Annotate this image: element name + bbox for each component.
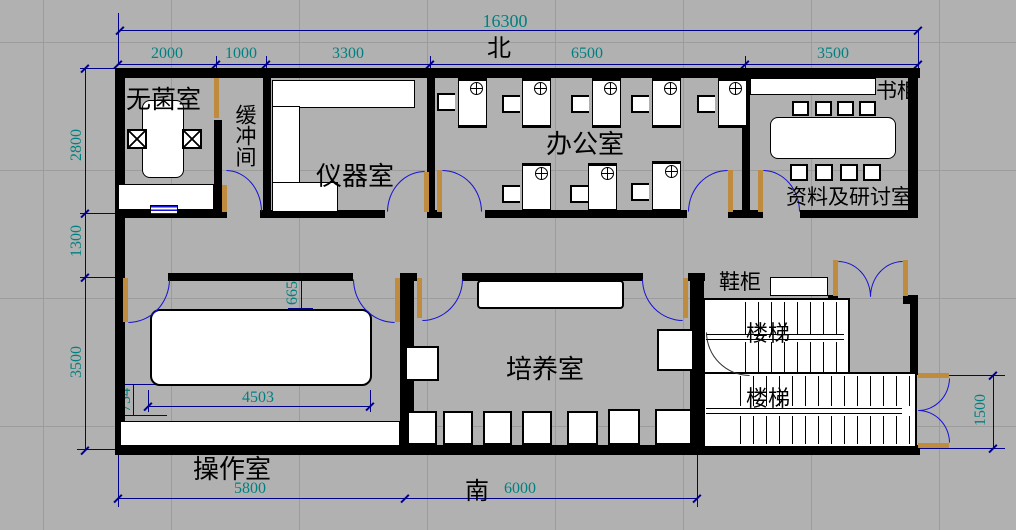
chair	[570, 185, 588, 203]
wall-sterile-right	[214, 120, 222, 210]
door-office-left-arc	[442, 170, 482, 212]
wall-outer-right-mid	[910, 303, 918, 375]
dim-line-top	[118, 64, 918, 65]
dim-top-0: 2000	[151, 45, 183, 63]
equipment-xbox	[182, 129, 202, 149]
chair	[631, 95, 649, 113]
dim-ext	[118, 13, 119, 64]
dim-line-right	[993, 375, 994, 448]
dim-left-1: 1300	[68, 225, 86, 257]
floor-plan-canvas: 16300 2000 1000 3300 6500 3500 2800 1300…	[0, 0, 1016, 530]
dim-top-2: 3300	[332, 45, 364, 63]
culture-box	[405, 346, 439, 381]
dim-ext	[118, 455, 119, 507]
dim-table-width: 4503	[242, 389, 274, 407]
dim-left-2: 3500	[68, 346, 86, 378]
room-label-instrument: 仪器室	[316, 156, 394, 193]
wall-outer-left	[115, 68, 125, 455]
compass-north: 北	[487, 28, 511, 63]
door-buffer-arc	[226, 170, 262, 212]
dim-left-0: 2800	[68, 129, 86, 161]
dim-line-bottom	[118, 498, 697, 499]
desk-lamp-icon	[470, 82, 483, 95]
wall-buffer-instrument	[263, 78, 271, 218]
culture-box	[522, 411, 552, 445]
desk-lamp-icon	[665, 165, 678, 178]
door-exit-top-arc	[918, 378, 950, 411]
compass-south: 南	[465, 471, 489, 506]
dim-top-3: 6500	[571, 45, 603, 63]
door-stairhall-right-leaf	[903, 260, 908, 296]
chair	[863, 164, 881, 181]
shoe-cabinet	[770, 277, 828, 296]
dim-ext	[148, 390, 149, 412]
desk-lamp-icon	[534, 82, 547, 95]
door-sterile-leaf	[214, 78, 219, 118]
label-shoe-cabinet: 鞋柜	[719, 266, 761, 296]
chair	[437, 93, 455, 111]
desk-lamp-icon	[601, 167, 614, 180]
chair	[840, 164, 858, 181]
dim-line-left	[85, 68, 86, 450]
culture-box	[443, 411, 473, 445]
wall-stairhall-top-b	[903, 295, 918, 304]
instrument-counter-top	[272, 80, 415, 108]
chair	[792, 101, 809, 116]
chair	[815, 164, 833, 181]
dim-right: 1500	[972, 394, 990, 426]
culture-box	[657, 329, 694, 371]
door-exit-bottom-arc	[918, 410, 950, 443]
stair-treads	[740, 416, 912, 444]
dim-bottom-1: 6000	[504, 480, 536, 498]
culture-box	[483, 411, 512, 445]
dim-ext	[697, 455, 698, 507]
chair	[790, 164, 808, 181]
culture-box	[608, 409, 640, 445]
dim-top-4: 3500	[817, 45, 849, 63]
door-culture-right-arc	[642, 279, 683, 321]
culture-box	[567, 411, 598, 445]
wall-corridor-bottom-a	[168, 273, 353, 281]
dim-shelf-offset: 665	[284, 281, 302, 305]
desk-lamp-icon	[664, 82, 677, 95]
room-label-operation: 操作室	[193, 449, 271, 486]
equipment-xbox	[127, 129, 147, 149]
chair	[571, 95, 589, 113]
label-stairs-upper: 楼梯	[746, 316, 790, 348]
wall-corridor-top-f	[800, 210, 918, 218]
culture-box	[655, 409, 692, 445]
label-stairs-lower: 楼梯	[746, 381, 790, 413]
operation-table	[150, 309, 372, 386]
dim-top-1: 1000	[225, 45, 257, 63]
conference-table	[770, 117, 896, 159]
door-stairhall-right-arc	[870, 261, 903, 297]
wall-outer-top	[115, 68, 920, 78]
door-culture-right-leaf	[683, 278, 688, 318]
operation-bench	[120, 421, 400, 446]
chair	[837, 101, 854, 116]
chair	[815, 101, 832, 116]
door-stairhall-left-arc	[838, 261, 871, 297]
door-culture-left-arc	[422, 279, 463, 321]
dim-ext	[370, 390, 371, 412]
stair-rail	[706, 408, 902, 414]
bookcase	[750, 78, 876, 95]
chair	[502, 95, 520, 113]
room-label-archive: 资料及研讨室	[786, 181, 912, 211]
desk-lamp-icon	[535, 167, 548, 180]
desk-lamp-icon	[604, 82, 617, 95]
room-label-office: 办公室	[546, 124, 624, 161]
door-operation-right-leaf	[395, 278, 400, 322]
chair	[859, 101, 876, 116]
chair	[502, 185, 520, 203]
room-label-buffer: 缓冲间	[229, 104, 259, 167]
desk-lamp-icon	[729, 82, 742, 95]
door-office-right-leaf	[728, 170, 733, 212]
dim-ext	[119, 415, 167, 416]
label-bookcase: 书柜	[876, 75, 918, 105]
culture-shelf	[477, 280, 624, 309]
window-hatch	[150, 205, 178, 215]
door-exit-bottom-leaf	[918, 443, 949, 448]
chair	[697, 95, 715, 113]
chair	[631, 183, 649, 201]
door-office-right-arc	[688, 170, 728, 212]
room-label-culture: 培养室	[506, 349, 584, 386]
culture-box	[407, 411, 437, 445]
room-label-sterile: 无菌室	[126, 80, 201, 116]
